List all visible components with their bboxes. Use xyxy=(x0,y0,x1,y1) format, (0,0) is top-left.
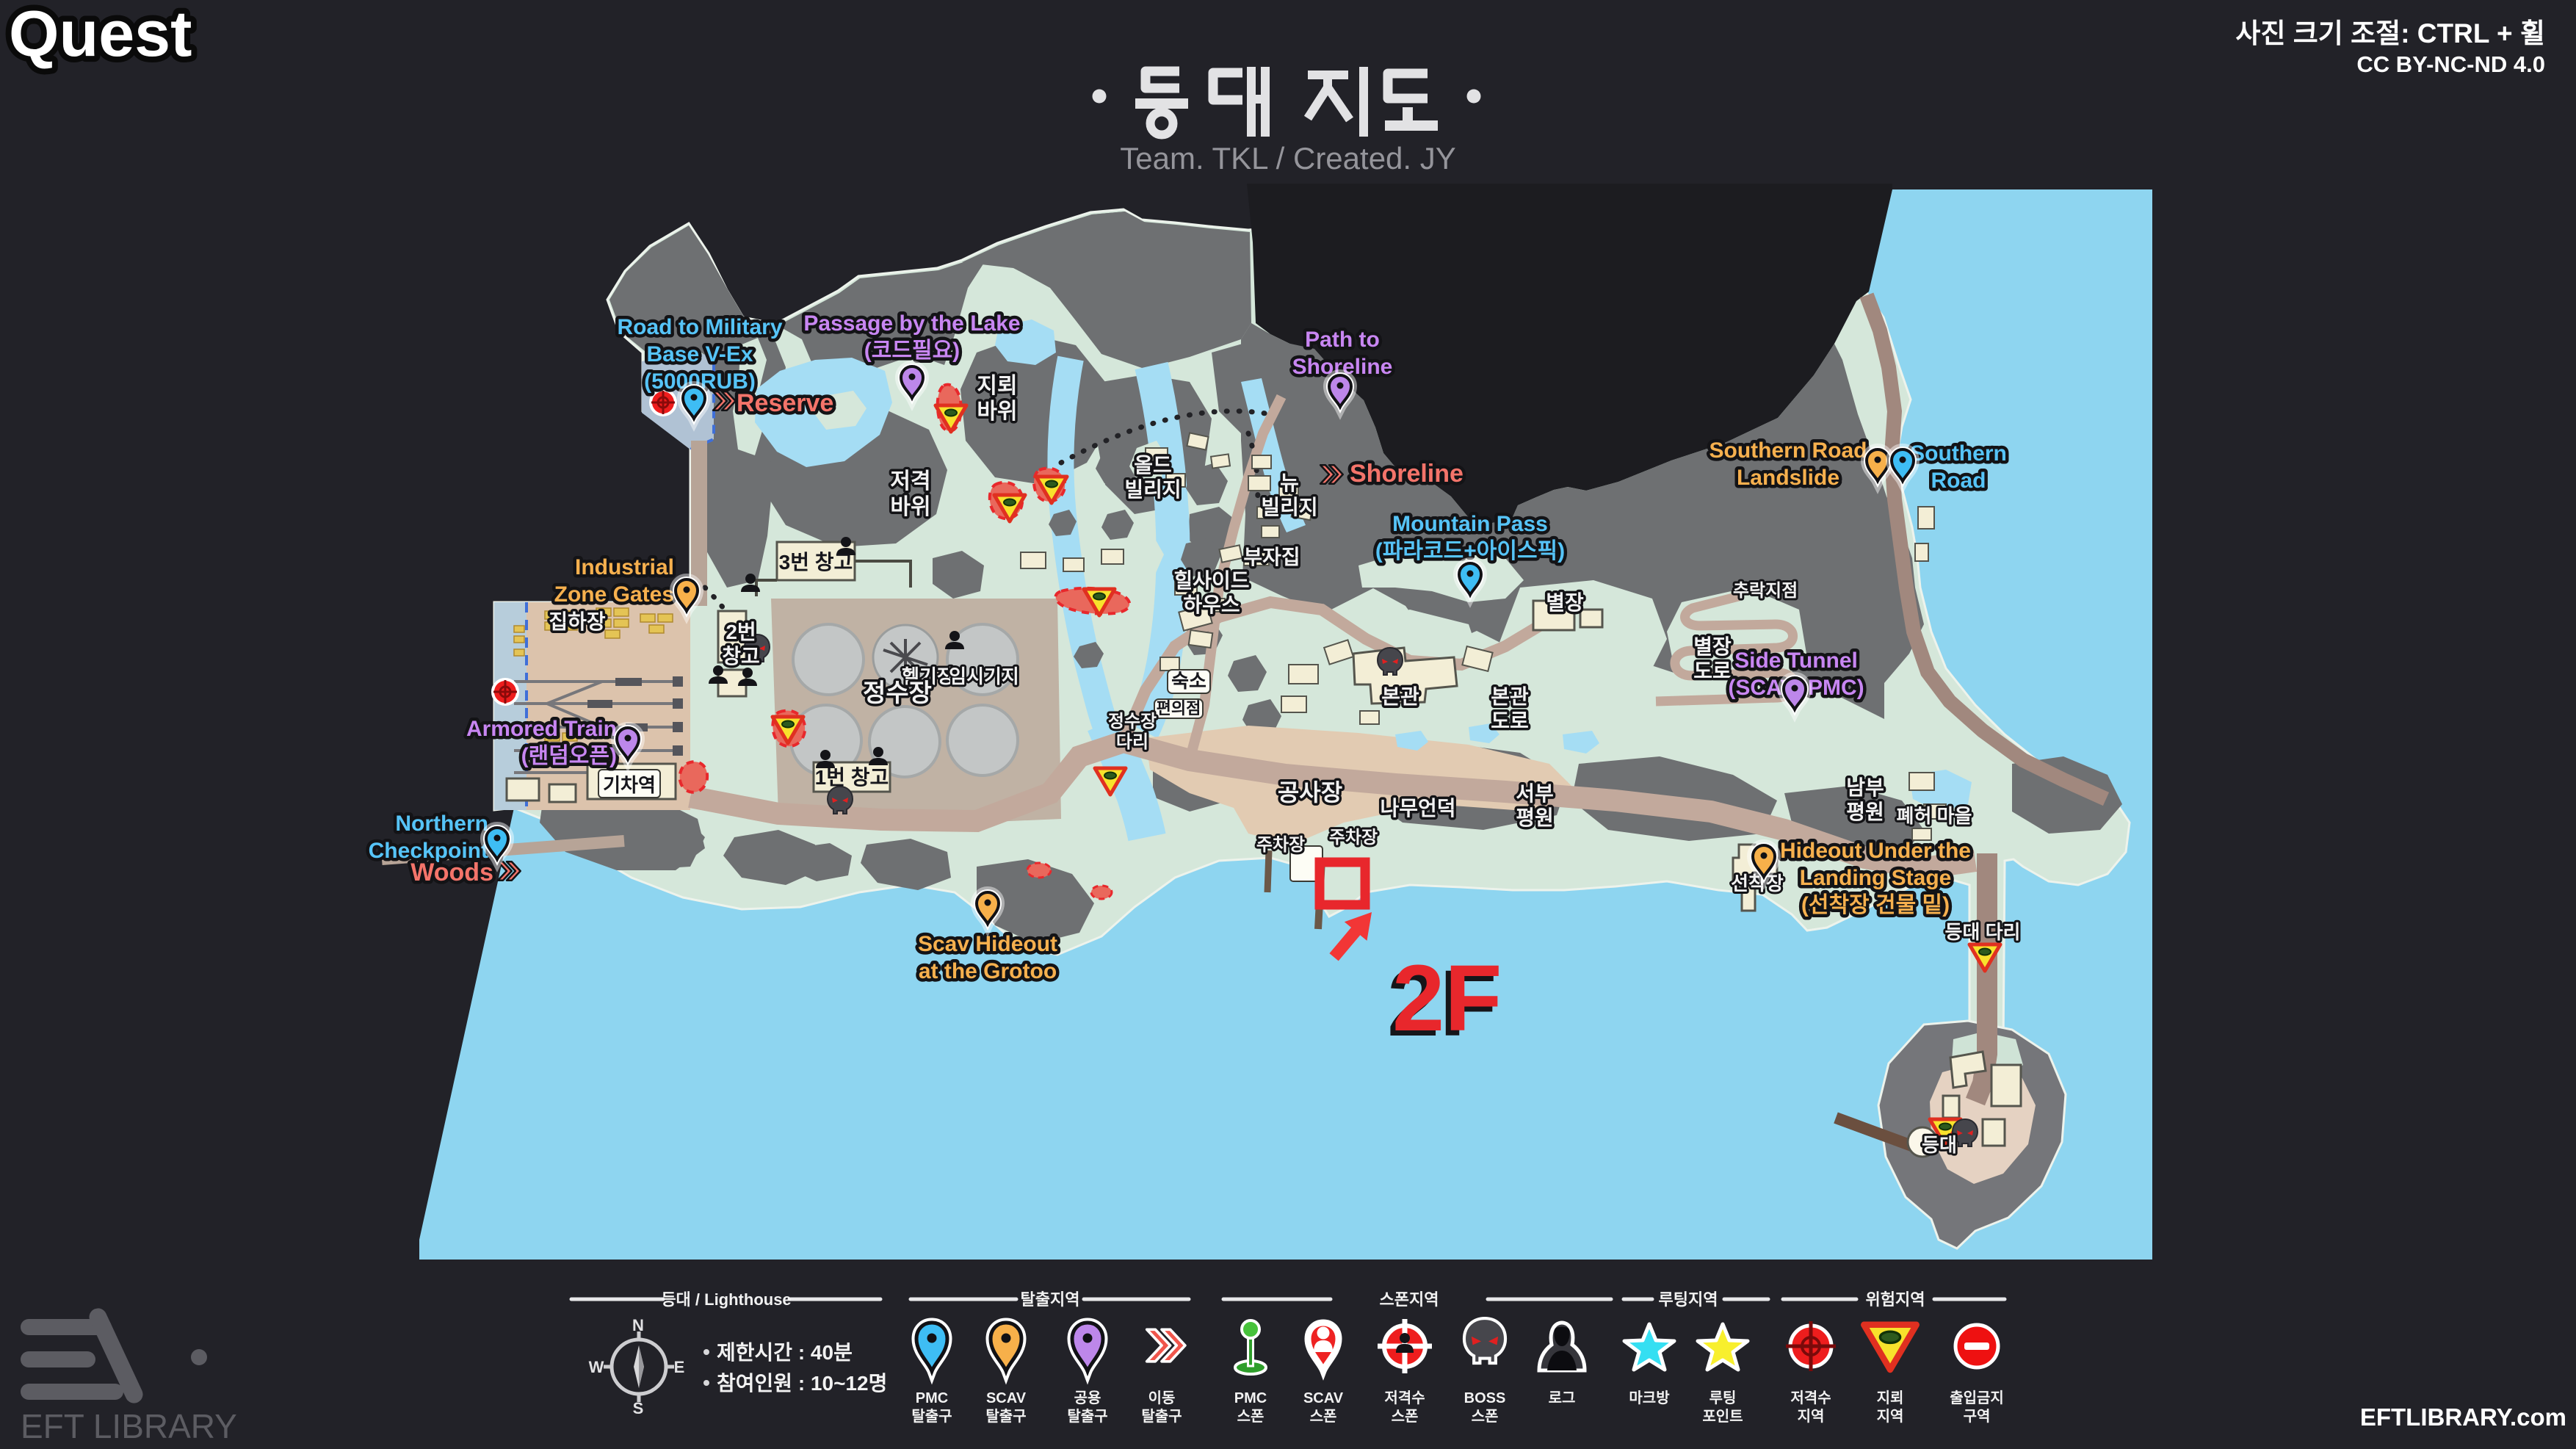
svg-text:참여인원 : 10~12명: 참여인원 : 10~12명 xyxy=(717,1372,887,1395)
svg-text:Landslide: Landslide xyxy=(1737,466,1839,490)
svg-text:저격수: 저격수 xyxy=(1384,1390,1425,1406)
svg-text:PMC: PMC xyxy=(1234,1390,1267,1406)
svg-text:지뢰: 지뢰 xyxy=(1877,1390,1904,1406)
svg-text:도로: 도로 xyxy=(1693,660,1732,682)
svg-text:Landing Stage: Landing Stage xyxy=(1800,866,1952,890)
svg-text:평원: 평원 xyxy=(1516,806,1554,829)
svg-text:별장: 별장 xyxy=(1693,635,1732,658)
svg-text:Team. TKL / Created. JY: Team. TKL / Created. JY xyxy=(1120,141,1456,176)
svg-text:Road to Military: Road to Military xyxy=(617,315,782,339)
svg-text:(코드필요): (코드필요) xyxy=(864,339,960,363)
svg-text:(랜덤오픈): (랜덤오픈) xyxy=(521,744,617,768)
svg-text:스폰: 스폰 xyxy=(1392,1409,1419,1425)
svg-text:Road: Road xyxy=(1931,469,1986,493)
svg-text:부자집: 부자집 xyxy=(1243,546,1300,568)
svg-text:Side Tunnel: Side Tunnel xyxy=(1734,648,1858,673)
svg-text:정수장: 정수장 xyxy=(863,679,932,707)
svg-text:로그: 로그 xyxy=(1549,1390,1576,1406)
svg-text:Reserve: Reserve xyxy=(737,389,833,417)
svg-text:추락지점: 추락지점 xyxy=(1733,581,1798,601)
svg-text:Path to: Path to xyxy=(1305,328,1380,352)
svg-text:정수장: 정수장 xyxy=(1108,712,1157,731)
svg-text:BOSS: BOSS xyxy=(1464,1390,1506,1406)
svg-text:W: W xyxy=(589,1358,604,1376)
svg-text:Armored Train: Armored Train xyxy=(466,717,617,741)
svg-text:Passage by the Lake: Passage by the Lake xyxy=(803,311,1020,336)
svg-text:Quest: Quest xyxy=(9,0,192,70)
svg-text:Southern: Southern xyxy=(1910,441,2007,466)
svg-text:저격수: 저격수 xyxy=(1790,1390,1831,1406)
svg-text:도로: 도로 xyxy=(1491,709,1529,732)
svg-text:주차장: 주차장 xyxy=(1256,835,1305,855)
svg-text:스폰: 스폰 xyxy=(1310,1409,1337,1425)
svg-text:탈출지역: 탈출지역 xyxy=(1021,1290,1080,1309)
svg-text:Northern: Northern xyxy=(395,812,488,836)
svg-text:SCAV: SCAV xyxy=(1303,1390,1344,1406)
svg-text:Industrial: Industrial xyxy=(575,555,674,579)
svg-text:구역: 구역 xyxy=(1964,1408,1991,1425)
svg-text:Base V-Ex: Base V-Ex xyxy=(646,342,753,366)
svg-text:1번 창고: 1번 창고 xyxy=(815,766,889,789)
svg-text:기차역: 기차역 xyxy=(603,774,656,796)
svg-text:임시기지: 임시기지 xyxy=(949,665,1019,687)
svg-text:3번 창고: 3번 창고 xyxy=(779,551,853,574)
svg-text:올드: 올드 xyxy=(1134,454,1172,477)
svg-text:Zone Gates: Zone Gates xyxy=(554,582,674,607)
svg-text:힐사이드: 힐사이드 xyxy=(1173,569,1249,592)
svg-text:CC BY-NC-ND 4.0: CC BY-NC-ND 4.0 xyxy=(2356,51,2545,77)
svg-text:마크방: 마크방 xyxy=(1629,1390,1670,1406)
svg-text:위험지역: 위험지역 xyxy=(1866,1290,1925,1309)
svg-text:Southern Road: Southern Road xyxy=(1710,438,1867,463)
svg-text:하우스: 하우스 xyxy=(1183,593,1240,616)
svg-text:2F: 2F xyxy=(1392,946,1502,1051)
svg-text:탈출구: 탈출구 xyxy=(1141,1408,1182,1425)
svg-text:포인트: 포인트 xyxy=(1702,1408,1743,1425)
svg-text:지역: 지역 xyxy=(1877,1408,1904,1425)
svg-text:남부: 남부 xyxy=(1846,776,1884,799)
svg-text:N: N xyxy=(632,1316,644,1334)
svg-text:스폰지역: 스폰지역 xyxy=(1380,1290,1439,1309)
svg-text:at the Grotoo: at the Grotoo xyxy=(919,959,1057,983)
svg-text:2번: 2번 xyxy=(726,621,756,643)
svg-text:서부: 서부 xyxy=(1516,782,1554,805)
svg-text:루팅지역: 루팅지역 xyxy=(1659,1290,1718,1309)
svg-text:Hideout Under the: Hideout Under the xyxy=(1780,839,1971,863)
svg-text:Mountain Pass: Mountain Pass xyxy=(1392,512,1548,536)
svg-text:스폰: 스폰 xyxy=(1237,1409,1265,1425)
svg-text:별장: 별장 xyxy=(1546,591,1584,614)
svg-text:탈출구: 탈출구 xyxy=(985,1408,1026,1425)
svg-text:EFT LIBRARY: EFT LIBRARY xyxy=(21,1407,237,1445)
svg-text:등대: 등대 xyxy=(1922,1134,1957,1156)
svg-text:창고: 창고 xyxy=(722,645,760,668)
svg-text:공용: 공용 xyxy=(1074,1390,1101,1406)
svg-text:주차장: 주차장 xyxy=(1329,828,1378,848)
svg-text:평원: 평원 xyxy=(1846,801,1884,823)
svg-text:집하장: 집하장 xyxy=(549,610,606,633)
svg-text:사진 크기 조절: CTRL + 휠: 사진 크기 조절: CTRL + 휠 xyxy=(2235,18,2545,48)
svg-text:뉴: 뉴 xyxy=(1280,471,1299,494)
svg-text:PMC: PMC xyxy=(916,1390,948,1406)
svg-text:제한시간 : 40분: 제한시간 : 40분 xyxy=(717,1341,853,1364)
svg-text:출입금지: 출입금지 xyxy=(1950,1390,2004,1406)
svg-text:지역: 지역 xyxy=(1798,1408,1825,1425)
svg-text:이동: 이동 xyxy=(1148,1390,1176,1406)
svg-text:탈출구: 탈출구 xyxy=(911,1408,952,1425)
svg-text:(선착장 건물 밑): (선착장 건물 밑) xyxy=(1801,893,1950,917)
svg-text:본관: 본관 xyxy=(1491,685,1529,708)
svg-text:등대 / Lighthouse: 등대 / Lighthouse xyxy=(661,1290,791,1309)
svg-text:본관: 본관 xyxy=(1381,685,1419,708)
svg-text:E: E xyxy=(674,1358,685,1376)
svg-text:S: S xyxy=(633,1399,644,1417)
svg-text:바위: 바위 xyxy=(977,400,1017,424)
svg-text:스폰: 스폰 xyxy=(1472,1409,1499,1425)
svg-text:Shoreline: Shoreline xyxy=(1350,460,1464,488)
svg-text:다리: 다리 xyxy=(1116,732,1148,752)
svg-text:EFTLIBRARY.com: EFTLIBRARY.com xyxy=(2360,1403,2566,1431)
svg-text:저격: 저격 xyxy=(890,469,930,494)
svg-text:빌리지: 빌리지 xyxy=(1261,496,1317,518)
svg-text:나무언덕: 나무언덕 xyxy=(1380,797,1455,820)
svg-text:탈출구: 탈출구 xyxy=(1067,1408,1107,1425)
svg-text:SCAV: SCAV xyxy=(986,1390,1027,1406)
svg-text:공사장: 공사장 xyxy=(1278,779,1342,806)
svg-text:빌리지: 빌리지 xyxy=(1124,478,1181,501)
svg-text:지뢰: 지뢰 xyxy=(977,374,1017,398)
svg-text:바위: 바위 xyxy=(890,495,930,519)
svg-text:폐허 마을: 폐허 마을 xyxy=(1897,805,1972,827)
svg-text:숙소: 숙소 xyxy=(1171,670,1206,692)
svg-text:루팅: 루팅 xyxy=(1710,1390,1737,1406)
svg-text:등대 다리: 등대 다리 xyxy=(1945,921,2021,943)
svg-text:편의점: 편의점 xyxy=(1157,699,1201,718)
svg-text:Woods: Woods xyxy=(410,859,493,886)
